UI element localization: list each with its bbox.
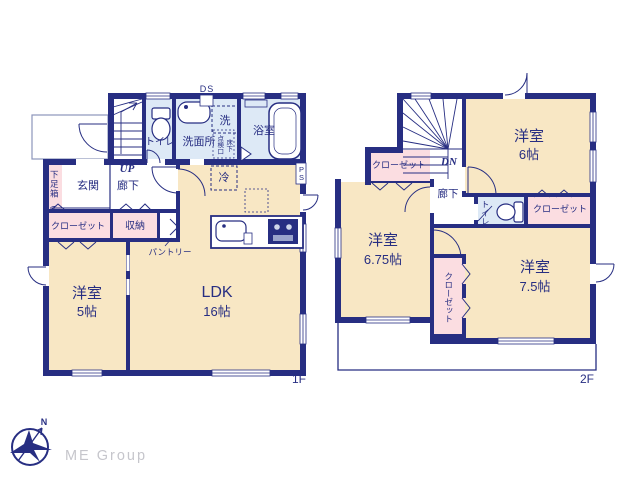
duct-space-box bbox=[200, 95, 213, 106]
toilet-icon-2f bbox=[497, 202, 523, 222]
closet-2f-nw bbox=[368, 150, 430, 182]
storage-1f bbox=[113, 213, 157, 242]
closet-1f bbox=[46, 213, 110, 242]
floorplan-drawing bbox=[0, 0, 640, 480]
pipe-space-box bbox=[296, 163, 306, 184]
western-room-5 bbox=[46, 242, 128, 373]
toilet-icon-1f bbox=[152, 108, 170, 119]
toilet-bowl-icon-1f bbox=[152, 118, 170, 140]
western-room-675 bbox=[338, 182, 430, 320]
ldk-room bbox=[128, 162, 303, 373]
floorplan-page: DS トイレ 洗面所 洗 床下 点検口 浴室 下足箱 T 玄関 UP 廊下 クロ… bbox=[0, 0, 640, 480]
closet-2f-mid bbox=[433, 258, 465, 335]
western-room-6 bbox=[465, 96, 593, 197]
kitchen-sink-icon bbox=[216, 221, 246, 241]
compass-north-icon bbox=[10, 428, 52, 465]
bath-counter-icon bbox=[245, 100, 267, 107]
entrance-porch bbox=[32, 115, 108, 159]
closet-2f-east bbox=[527, 197, 593, 228]
